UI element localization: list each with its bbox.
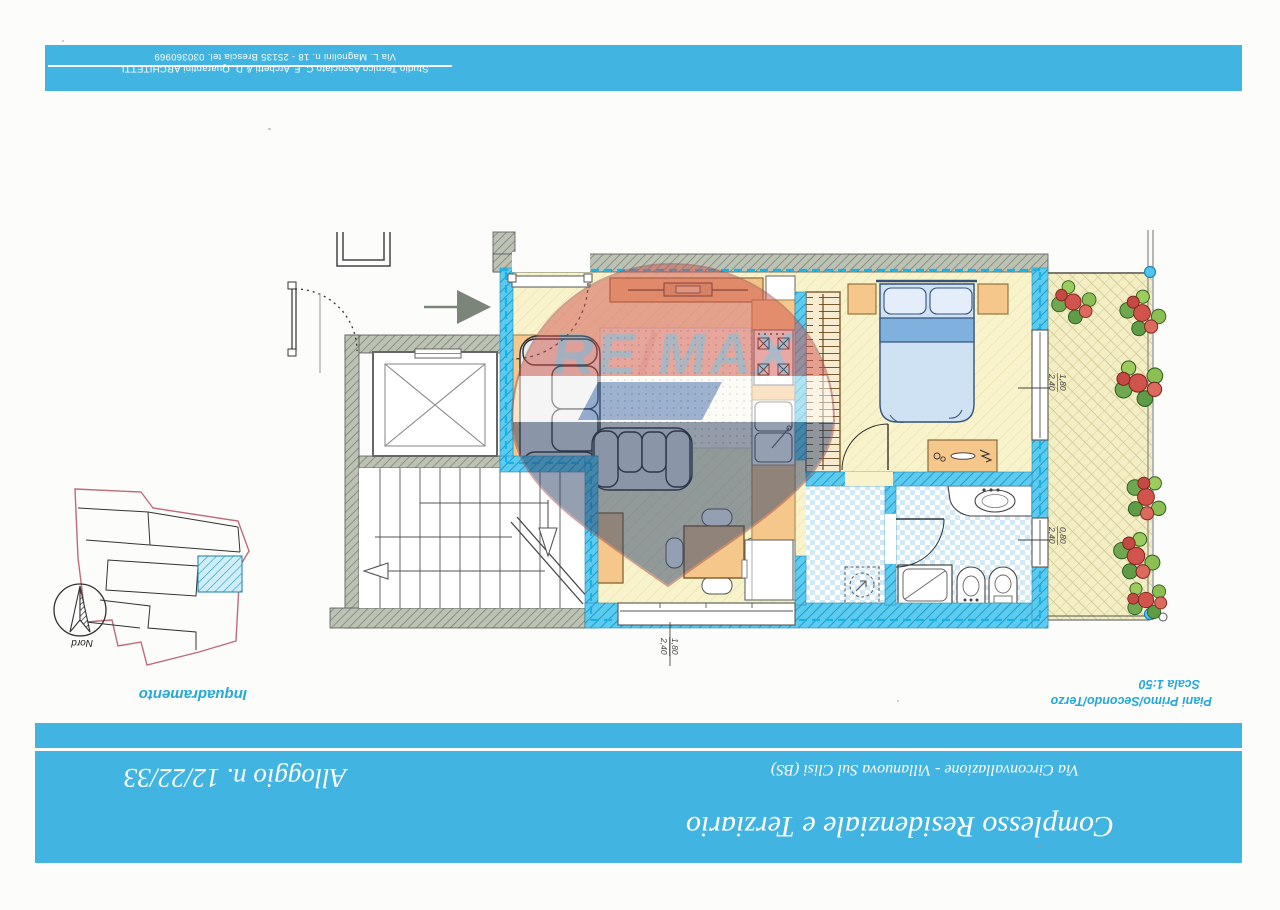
elevator [373, 349, 497, 456]
svg-text:2,40: 2,40 [1047, 373, 1057, 391]
washbasin [975, 490, 1015, 512]
svg-text:1,80: 1,80 [670, 638, 680, 655]
svg-text:0,80: 0,80 [1058, 527, 1068, 544]
dimension-living-window: 1,80 2,40 [659, 622, 680, 666]
north-label: Nord [71, 637, 93, 648]
svg-text:2,40: 2,40 [1047, 526, 1057, 544]
shower [898, 565, 952, 605]
dim-bedroom-w: 1,80 [1058, 374, 1068, 391]
scanned-floorplan-page: Studio Tecnico Associato C. F. Archetti … [0, 0, 1280, 910]
living-window [618, 603, 795, 625]
bathroom-window [1032, 518, 1048, 567]
scale-label: Scala 1:50 [1139, 677, 1200, 691]
entry-arrow [424, 290, 491, 324]
dim-bedroom-h: 2,40 [1047, 373, 1057, 391]
nightstand-right [978, 284, 1008, 314]
floors-label: Piani Primo/Secondo/Terzo [1050, 694, 1212, 708]
kitchen-appliance [742, 540, 793, 600]
dim-living-h: 2,40 [659, 637, 669, 655]
inset-label: Inquadramento [139, 686, 247, 703]
unit-location-highlight [198, 556, 242, 592]
toilet [989, 567, 1017, 605]
north-arrow-icon: Nord [54, 584, 106, 648]
dim-bathroom-w: 0,80 [1058, 527, 1068, 544]
scan-speck [897, 700, 899, 702]
bed-fold [880, 318, 974, 342]
bottom-band: Alloggio n. 12/22/33 Via Circonvallazion… [35, 723, 1242, 863]
site-plan-inset: Nord [54, 489, 249, 665]
unit-number: Alloggio n. 12/22/33 [70, 753, 400, 793]
project-title: Complesso Residenziale e Terziario [640, 799, 1160, 843]
bottom-band-divider [35, 748, 1242, 751]
scan-speck [268, 128, 271, 130]
watermark-re: RE [548, 322, 644, 387]
remax-logo-text: RE/MAX [548, 322, 801, 387]
bedroom-window [1032, 330, 1048, 440]
svg-text:1,80: 1,80 [1058, 374, 1068, 391]
dim-living-w: 1,80 [670, 638, 680, 655]
bidet [957, 567, 985, 605]
project-address: Via Circonvallazione - Villanuova Sul Cl… [695, 754, 1155, 778]
dresser [928, 440, 997, 472]
bed [876, 281, 977, 422]
svg-text:2,40: 2,40 [659, 637, 669, 655]
scan-speck [1037, 845, 1041, 848]
bathroom-vanity [948, 486, 1032, 516]
scan-speck [62, 40, 64, 42]
nightstand-left [848, 284, 876, 314]
shaft-u [337, 232, 390, 266]
dim-bathroom-h: 2,40 [1047, 526, 1057, 544]
pillow-right [930, 288, 972, 314]
watermark-max: MAX [654, 322, 801, 387]
pillow-left [884, 288, 926, 314]
